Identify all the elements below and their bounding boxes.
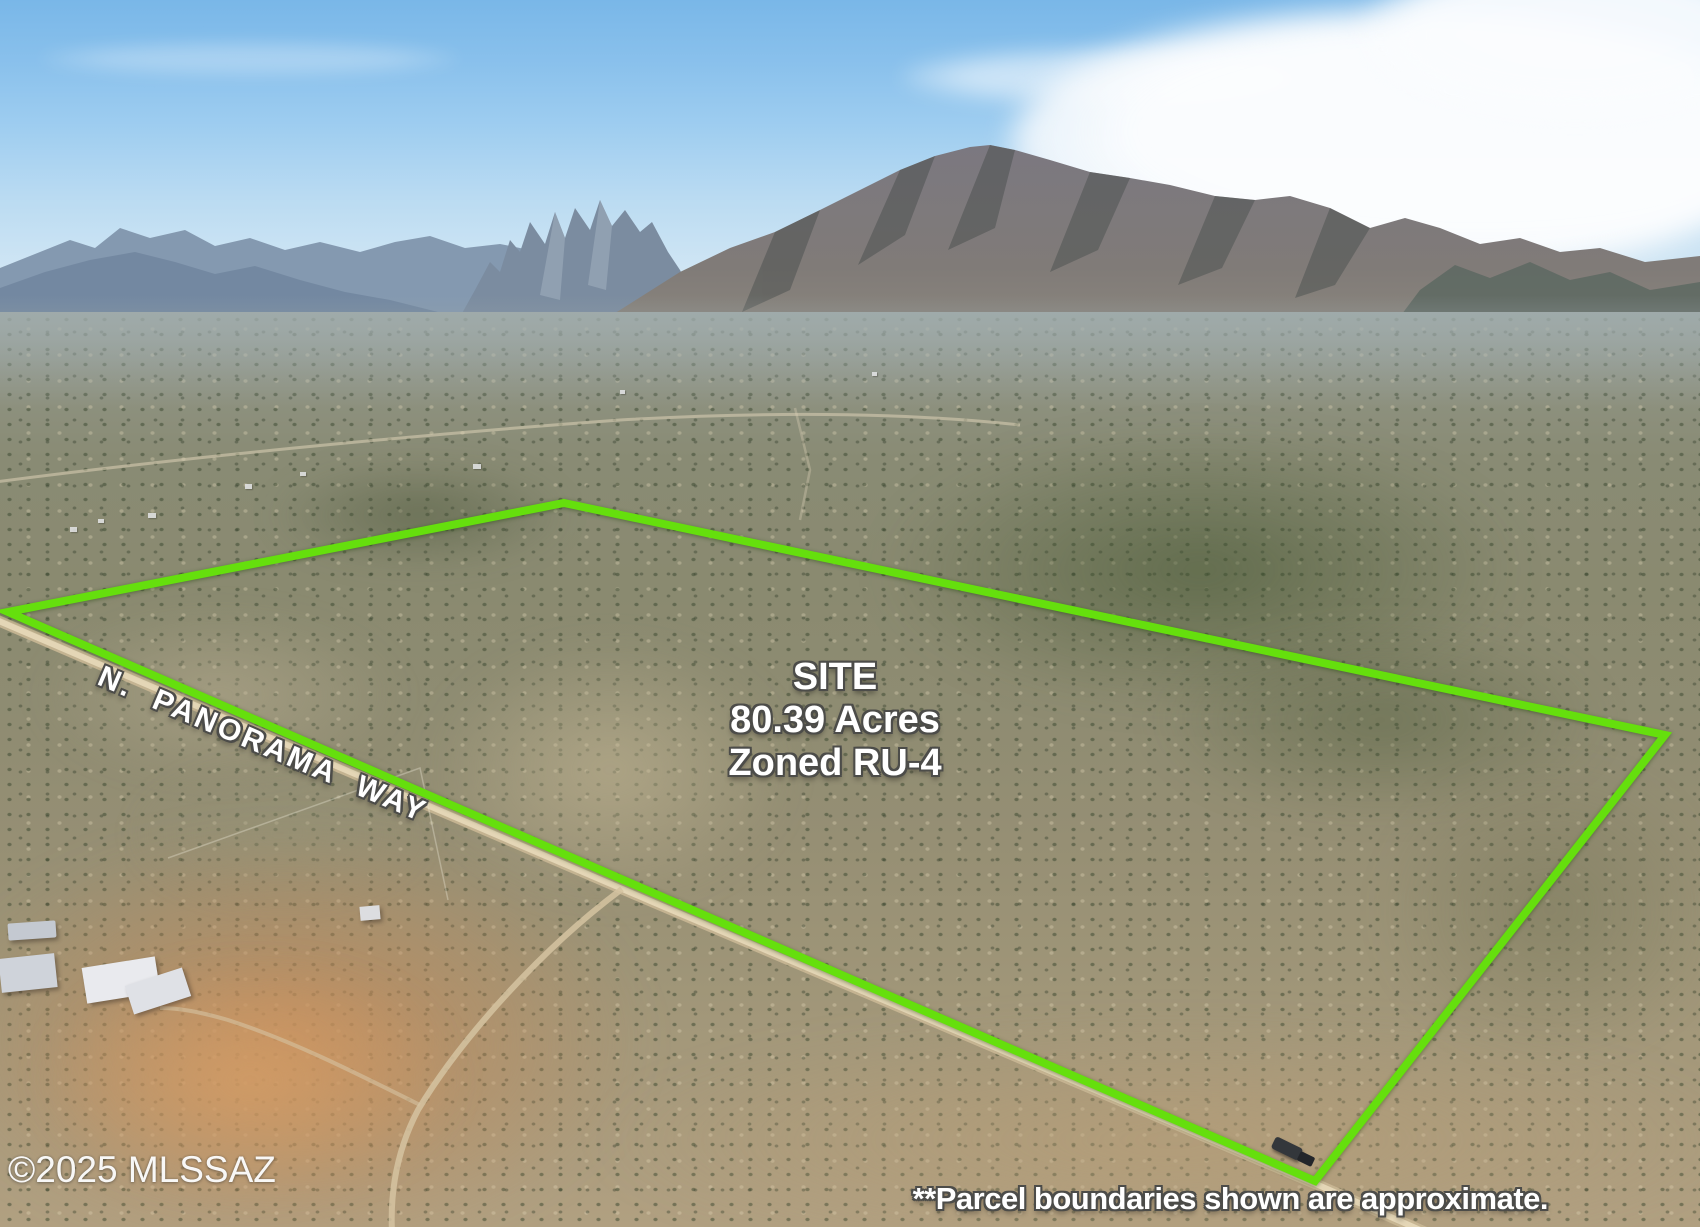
mls-watermark: ©2025 MLSSAZ	[8, 1149, 276, 1191]
site-label: SITE 80.39 Acres Zoned RU-4	[635, 656, 1035, 785]
parcel-boundary	[0, 0, 1700, 1227]
parcel-boundary-line	[8, 503, 1665, 1181]
site-label-zoning: Zoned RU-4	[635, 742, 1035, 785]
boundary-disclaimer: **Parcel boundaries shown are approximat…	[913, 1181, 1548, 1217]
site-label-title: SITE	[635, 656, 1035, 699]
site-label-acreage: 80.39 Acres	[635, 699, 1035, 742]
aerial-listing-photo: SITE 80.39 Acres Zoned RU-4 N. PANORAMA …	[0, 0, 1700, 1227]
